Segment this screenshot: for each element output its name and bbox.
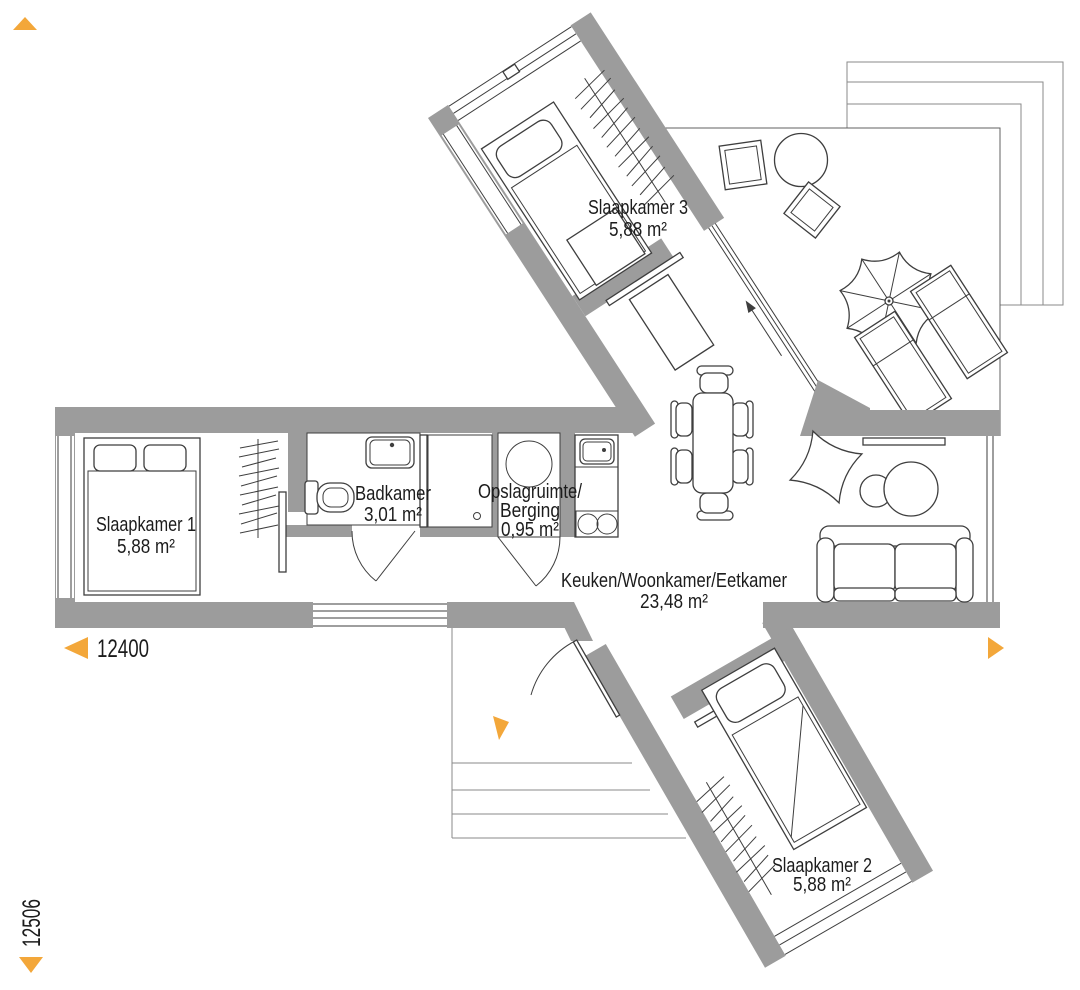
window: [313, 602, 447, 628]
pouf: [884, 462, 938, 516]
entrance: [452, 602, 686, 838]
chair: [732, 450, 748, 483]
wall: [850, 410, 1000, 436]
window-glazing: [987, 436, 993, 602]
sofa-cushion: [895, 544, 956, 592]
terrace-table: [775, 134, 828, 187]
room-label-badkamer: Badkamer: [355, 483, 431, 505]
sofa-armrest: [817, 538, 834, 602]
sliding-door-panel: [279, 492, 286, 572]
sofa-armrest: [956, 538, 973, 602]
room-area-slaapkamer2: 5,88 m²: [793, 874, 851, 896]
wall: [763, 602, 1000, 628]
sofa-base: [834, 588, 895, 601]
burner: [578, 514, 598, 534]
shower-drain: [474, 513, 481, 520]
faucet: [390, 443, 394, 447]
sofa-back: [820, 526, 970, 546]
room-area-opslag: 0,95 m²: [501, 519, 559, 541]
washbasin: [366, 437, 414, 468]
entrance-arrow-icon: [493, 716, 509, 740]
pillow: [94, 445, 136, 471]
floor-plan: Slaapkamer 3 5,88 m² Slaapkamer 1 5,88 m…: [0, 0, 1080, 990]
burner: [597, 514, 617, 534]
chair: [700, 493, 728, 513]
door-swing-arc: [531, 641, 575, 695]
dim-width-label: 12400: [97, 635, 149, 663]
chair: [732, 403, 748, 436]
clothes-hangers: [239, 441, 279, 533]
floorplan-page: Slaapkamer 3 5,88 m² Slaapkamer 1 5,88 m…: [0, 0, 1080, 990]
sofa: [817, 526, 973, 602]
dim-arrow-down-icon: [19, 957, 43, 973]
dining-table: [693, 393, 733, 493]
chair: [676, 450, 692, 483]
room-area-slaapkamer3: 5,88 m²: [609, 219, 667, 241]
faucet: [602, 448, 606, 452]
chair: [700, 373, 728, 393]
dim-arrow-right-icon: [988, 637, 1004, 659]
door-swing-arc: [536, 537, 560, 586]
pillow: [144, 445, 186, 471]
terrace-chair: [719, 140, 767, 189]
wall: [55, 407, 640, 433]
sofa-base: [895, 588, 956, 601]
dim-arrow-up-icon: [13, 17, 37, 30]
room-area-woonkamer: 23,48 m²: [640, 591, 708, 613]
beanbag: [790, 431, 862, 503]
wall: [283, 525, 352, 537]
door-leaf: [498, 537, 536, 586]
wall-shelf: [863, 438, 945, 445]
wall-partition: [288, 433, 307, 512]
living-room-furniture: [790, 431, 973, 602]
toilet-tank: [305, 481, 318, 514]
door-swing-arc: [352, 531, 376, 581]
room-label-slaapkamer1: Slaapkamer 1: [96, 514, 196, 536]
door-leaf: [376, 531, 415, 581]
chair: [676, 403, 692, 436]
dim-arrow-left-icon: [64, 637, 88, 659]
beanbag-shape: [790, 431, 862, 503]
dim-depth-label: 12506: [18, 899, 46, 947]
room-area-slaapkamer1: 5,88 m²: [117, 536, 175, 558]
sofa-cushion: [834, 544, 895, 592]
parasol-pole-center: [888, 300, 891, 303]
room-label-woonkamer: Keuken/Woonkamer/Eetkamer: [561, 570, 787, 592]
room-area-badkamer: 3,01 m²: [364, 504, 422, 526]
room-label-slaapkamer3: Slaapkamer 3: [588, 197, 688, 219]
wall: [420, 527, 497, 537]
